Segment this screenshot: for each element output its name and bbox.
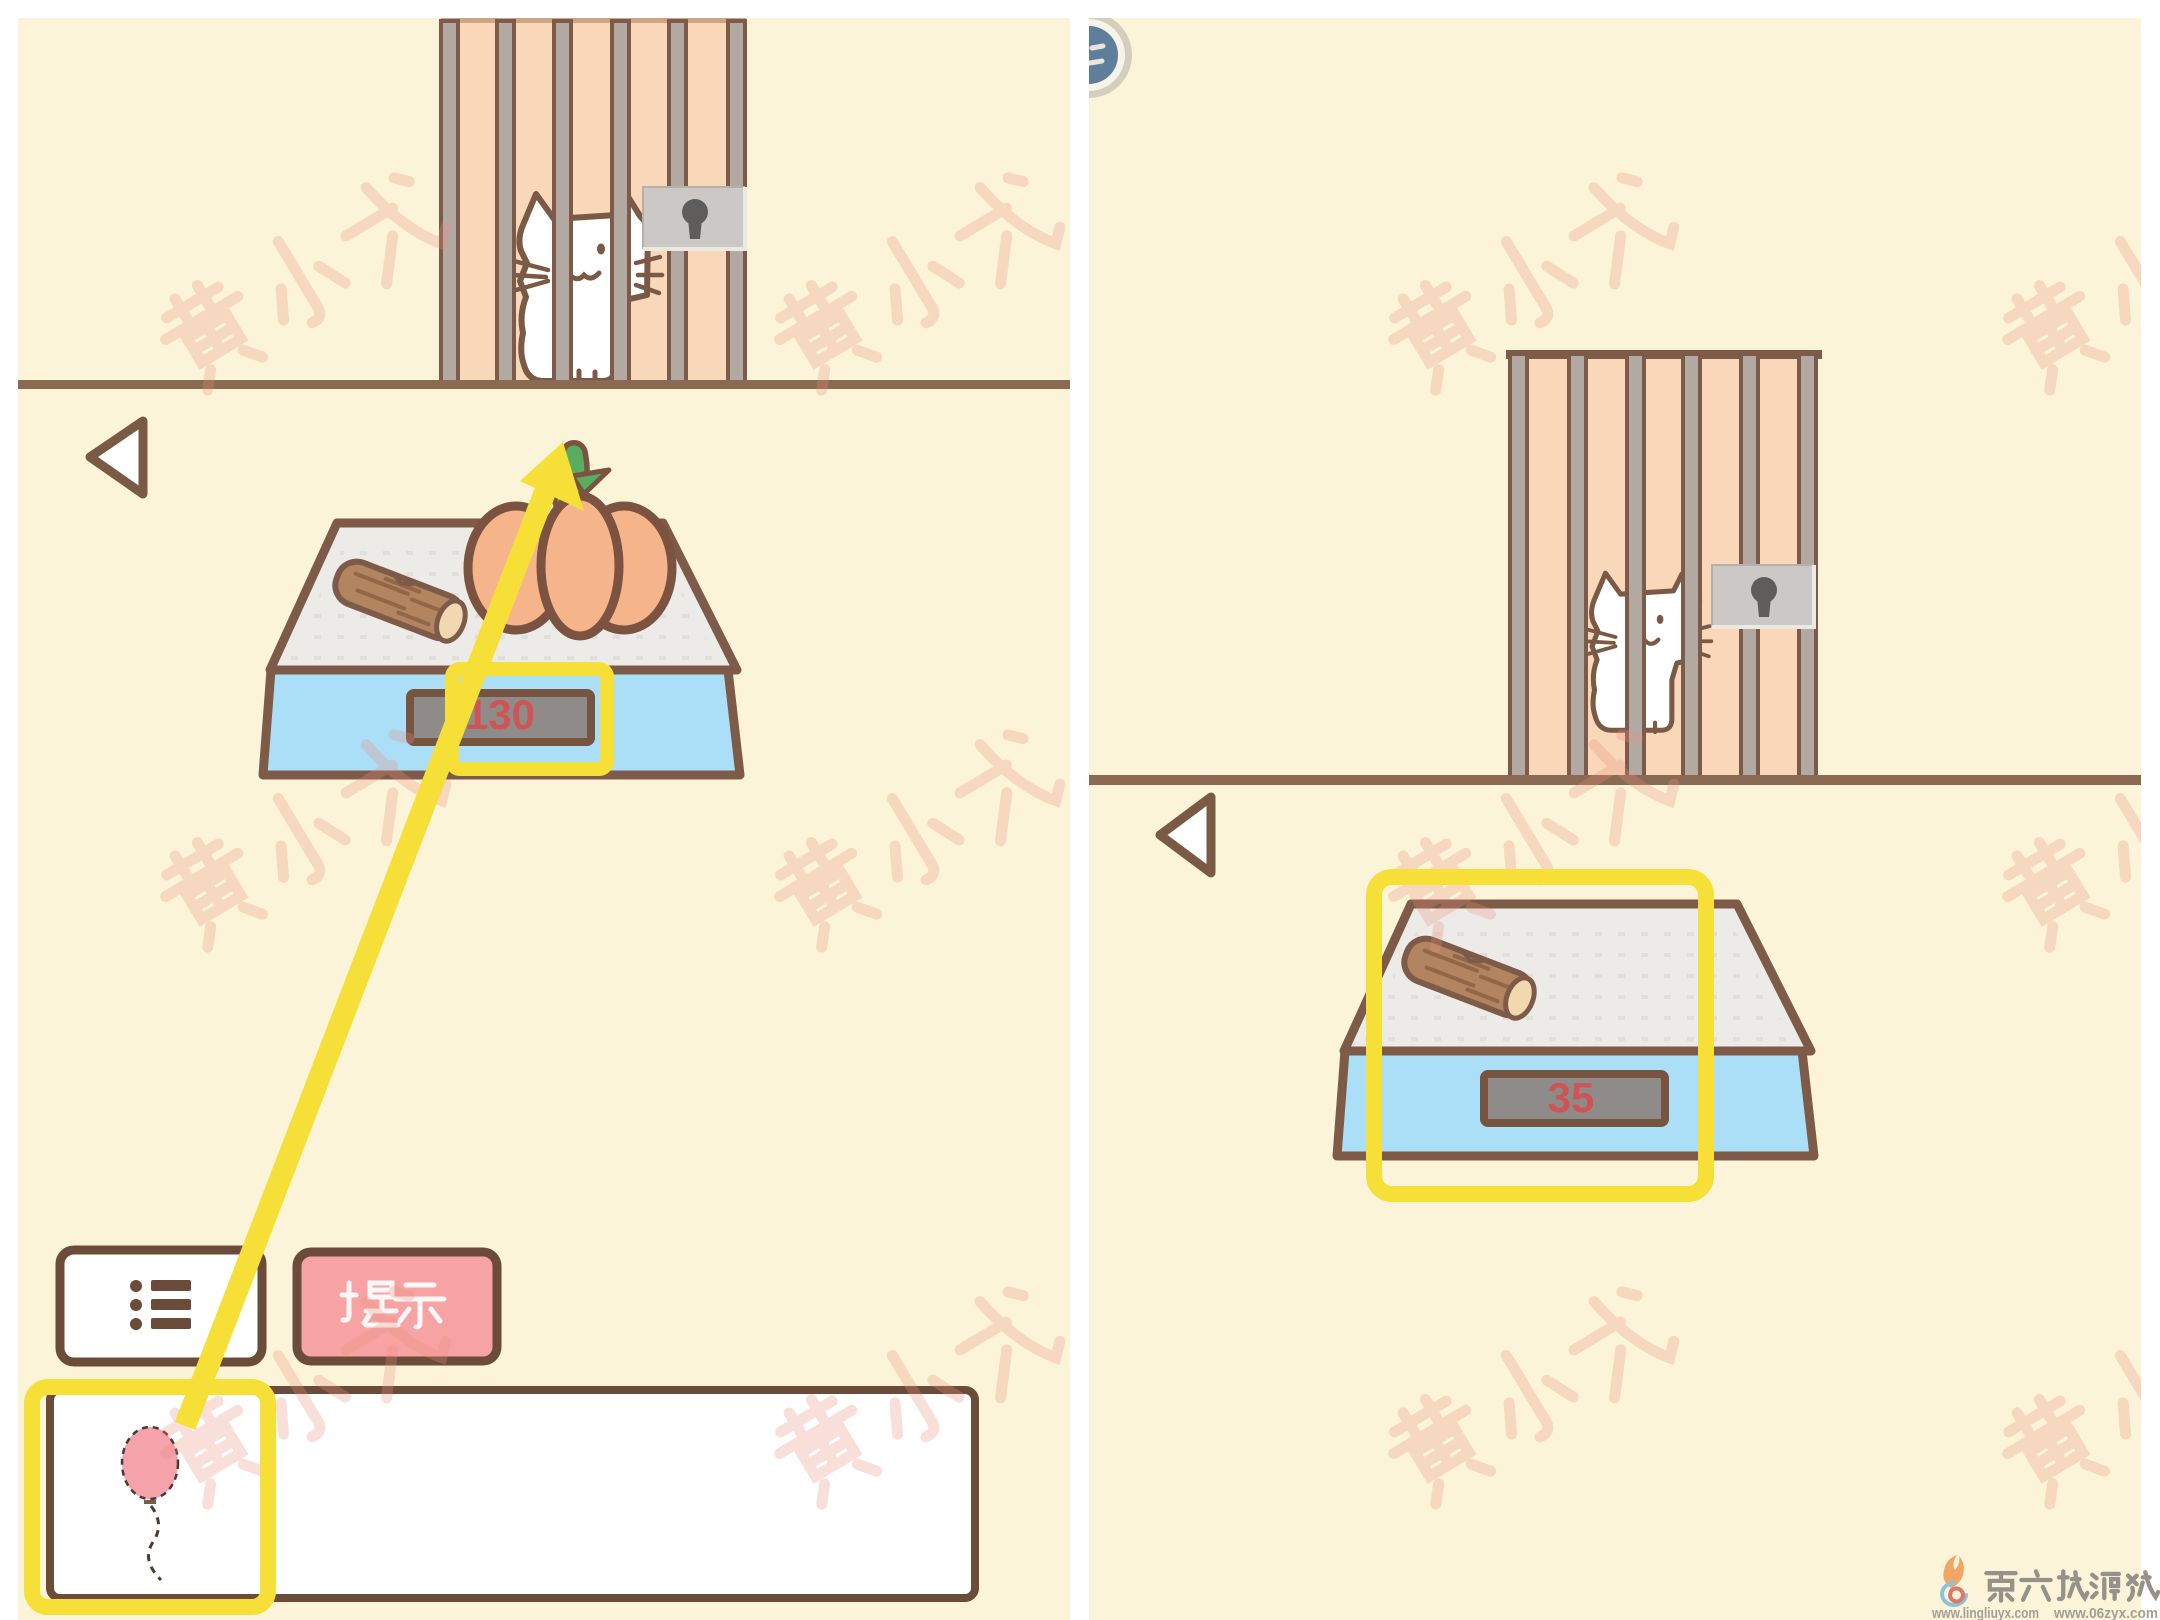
svg-text:35: 35 [1548,1074,1595,1121]
svg-text:www.06zyx.com: www.06zyx.com [2053,1605,2158,1620]
svg-text:www.lingliuyx.com: www.lingliuyx.com [1931,1605,2039,1620]
